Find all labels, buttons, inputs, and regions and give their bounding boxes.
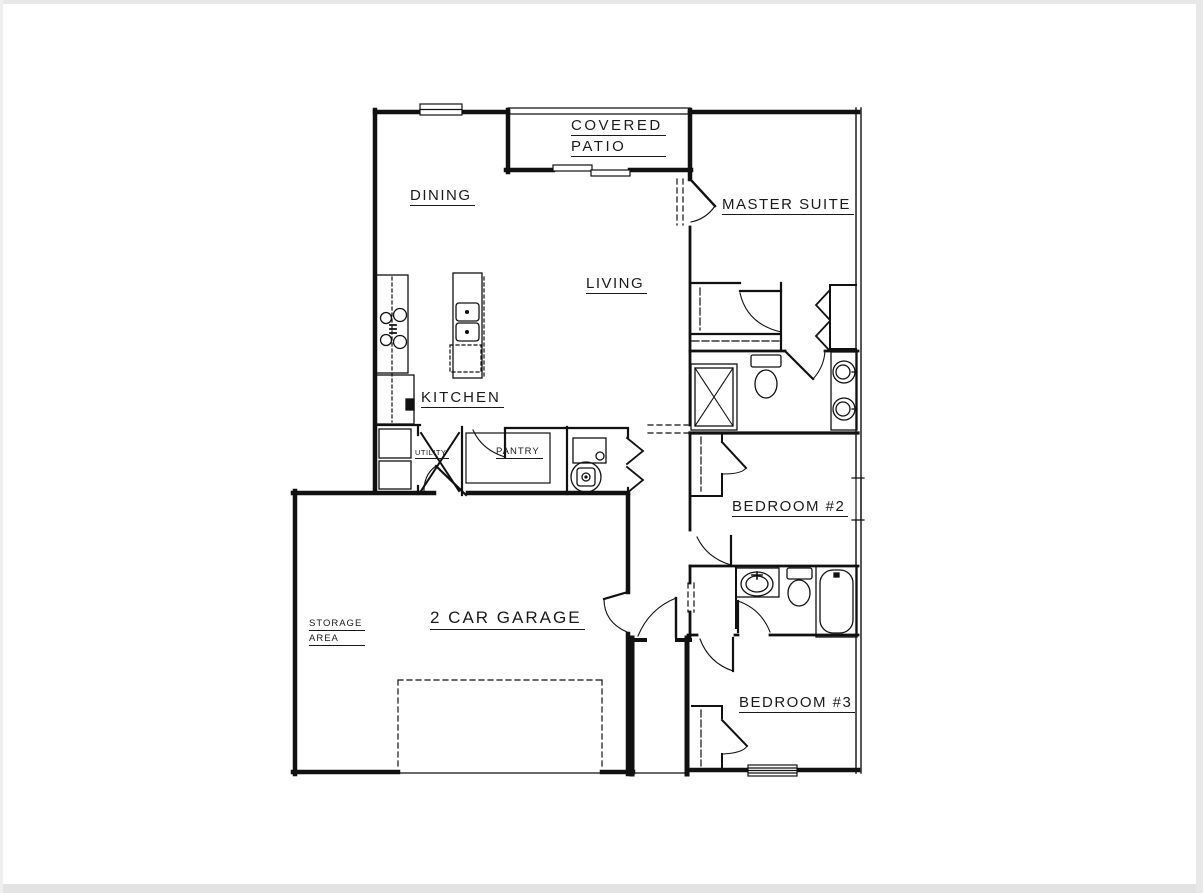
linen-closet-bifold-doors [816, 291, 829, 350]
garage-entry-door [604, 592, 628, 632]
cooktop [381, 309, 407, 349]
dining-window [420, 104, 462, 115]
room-label-kitchen: KITCHEN [421, 389, 504, 408]
patio-roof-edge [508, 108, 690, 114]
room-label-covered-patio: COVERED PATIO [571, 117, 666, 157]
master-cased-opening [677, 179, 683, 225]
room-label-garage: 2 CAR GARAGE [430, 608, 585, 630]
master-bath-door [785, 351, 825, 379]
washer [379, 429, 411, 458]
kitchen-island-sink [456, 303, 479, 341]
hall-bath-fixtures [736, 566, 857, 637]
kitchen-island [453, 273, 482, 378]
master-closet-door [740, 291, 781, 332]
hall-bath-toilet [787, 568, 812, 606]
hall-cased-opening [648, 425, 688, 433]
floor-plan-page: COVERED PATIO DINING MASTER SUITE LIVING… [0, 0, 1203, 893]
bedroom2-window [852, 478, 864, 520]
room-label-storage-area: STORAGE AREA [309, 618, 365, 646]
master-double-vanity [831, 352, 857, 430]
room-label-pantry: PANTRY [496, 446, 543, 459]
door-swings [421, 179, 829, 754]
room-label-master-suite: MASTER SUITE [722, 196, 854, 215]
right-exterior-wall [856, 108, 861, 773]
furnace [573, 438, 606, 463]
bedroom3-window [748, 765, 797, 776]
bathtub [816, 566, 857, 637]
room-label-dining: DINING [410, 187, 475, 206]
utility-fixtures [379, 429, 411, 489]
bedroom3-closet-door [722, 720, 747, 754]
patio-sliding-door [553, 165, 630, 176]
wall-pier [406, 399, 414, 410]
master-suite-door [690, 179, 715, 222]
bedroom2-door [697, 536, 731, 565]
hall-bath-vanity [736, 568, 779, 597]
front-door [638, 598, 676, 637]
water-heater [571, 462, 601, 492]
room-label-utility: UTILITY [415, 448, 449, 459]
mech-closet-bifold-doors [627, 438, 643, 493]
bath-hall-cased-opening [688, 583, 694, 612]
dryer [379, 461, 411, 489]
room-label-bedroom-3: BEDROOM #3 [739, 694, 855, 713]
hall-bath-door [738, 601, 770, 632]
utility-double-doors [421, 433, 459, 491]
bedroom3-door [700, 638, 733, 671]
mechanical-closet-fixtures [571, 438, 606, 492]
master-toilet [751, 355, 781, 398]
garage-overhead-door [398, 680, 602, 770]
room-label-living: LIVING [586, 275, 647, 294]
master-bath-fixtures [691, 352, 857, 430]
bedroom2-closet-door [722, 442, 746, 474]
shower [691, 364, 737, 430]
room-label-bedroom-2: BEDROOM #2 [732, 498, 848, 517]
dishwasher [450, 345, 481, 372]
